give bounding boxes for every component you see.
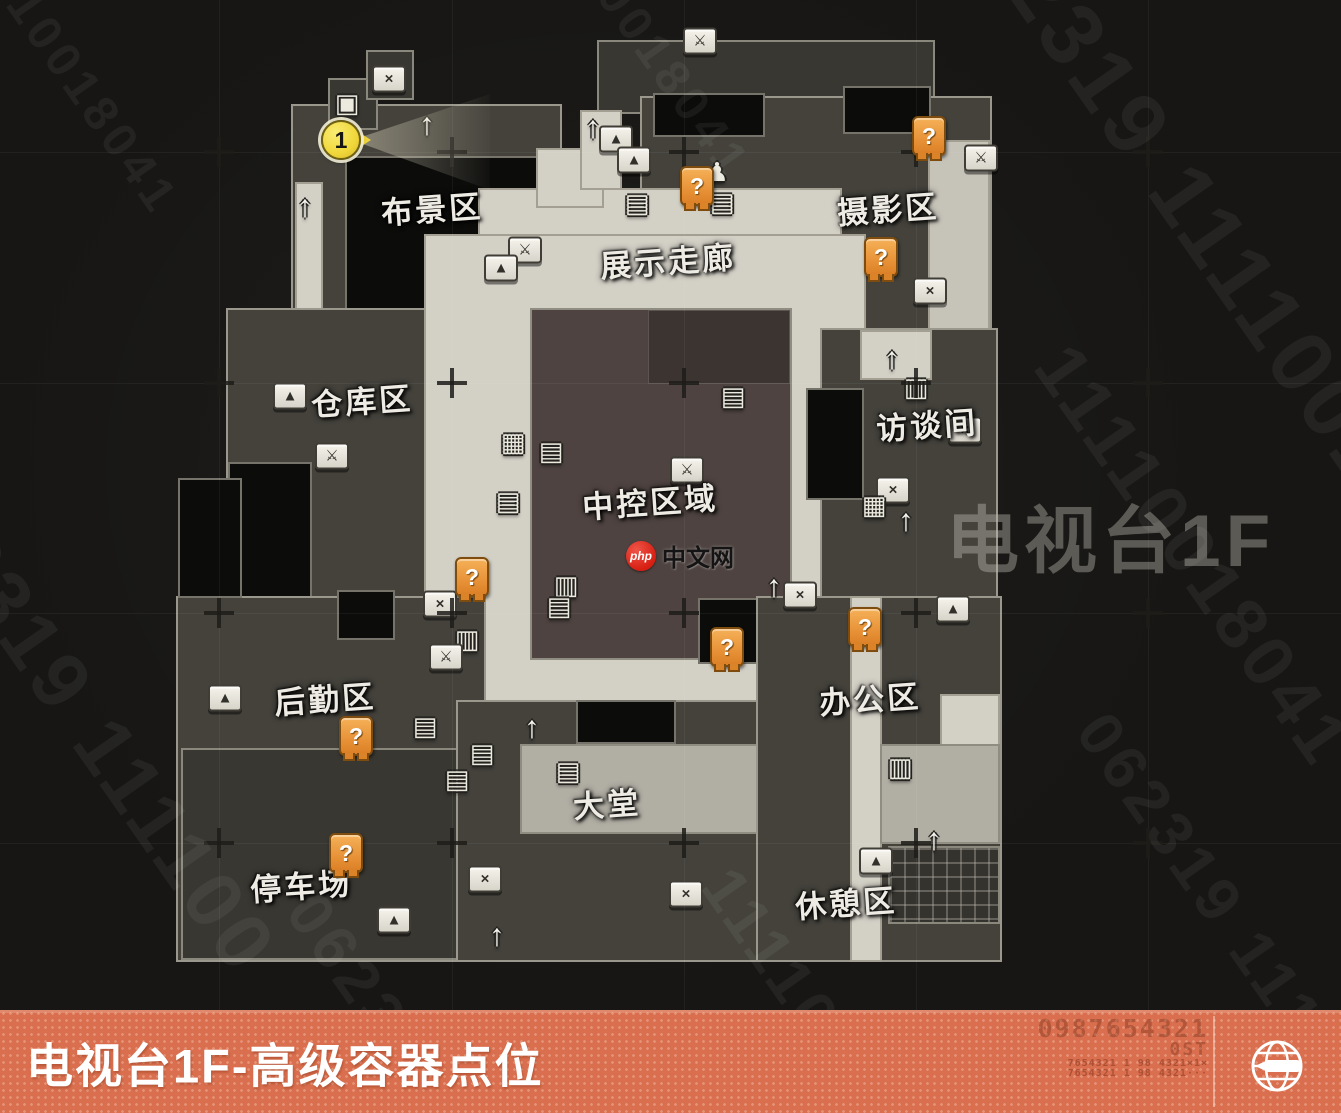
building-block bbox=[576, 700, 676, 744]
grid-cross-icon bbox=[901, 368, 931, 398]
crate-ammo-icon: ▲ bbox=[208, 685, 242, 712]
crate-x-icon: × bbox=[372, 66, 406, 93]
arrow-up-icon: ↑ bbox=[898, 505, 914, 536]
building-block bbox=[178, 478, 242, 598]
arrow-up-icon: ↑ bbox=[766, 571, 782, 602]
crate-ammo-icon: ▲ bbox=[273, 383, 307, 410]
room-label: 摄影区 bbox=[836, 181, 941, 233]
banner-code-line: 0987654321 bbox=[1008, 1016, 1208, 1041]
container-marker: ? bbox=[848, 607, 882, 647]
crate-ammo-icon: ▲ bbox=[377, 907, 411, 934]
room-label: 仓库区 bbox=[310, 373, 415, 425]
container-marker: ? bbox=[339, 716, 373, 756]
diagonal-watermark: 10018041 bbox=[0, 0, 190, 226]
room-label: 访谈间 bbox=[875, 397, 980, 449]
banner-code-line: 7654321 1 98 4321··· bbox=[1008, 1069, 1208, 1079]
luggage-icon: ▤ bbox=[413, 713, 438, 739]
crate-ammo-icon: ▲ bbox=[484, 255, 518, 282]
luggage-icon: ▤ bbox=[470, 740, 495, 766]
banner-code-line: 0ST bbox=[1008, 1041, 1208, 1059]
bottom-banner: 电视台1F-高级容器点位 0987654321 0ST 7654321 1 98… bbox=[0, 1010, 1341, 1113]
arrow-up-icon: ↑ bbox=[297, 191, 313, 222]
container-marker: ? bbox=[455, 557, 489, 597]
crate-rifle-icon: ⚔ bbox=[315, 443, 349, 470]
grid-cross-icon bbox=[901, 828, 931, 858]
spawn-marker-1: 1 bbox=[321, 120, 361, 160]
grid-cross-icon bbox=[669, 368, 699, 398]
container-marker: ? bbox=[329, 833, 363, 873]
room-label: 休憩区 bbox=[794, 875, 899, 927]
room-label: 大堂 bbox=[572, 777, 643, 827]
grid-cross-icon bbox=[204, 598, 234, 628]
luggage-icon: ▤ bbox=[556, 758, 581, 784]
crate-rifle-icon: ⚔ bbox=[683, 28, 717, 55]
container-marker: ? bbox=[710, 627, 744, 667]
grid-cross-icon bbox=[204, 137, 234, 167]
computer-icon: ▦ bbox=[862, 492, 887, 518]
room-label: 展示走廊 bbox=[599, 232, 738, 286]
grid-cross-icon bbox=[1133, 598, 1163, 628]
arrow-up-icon: ↑ bbox=[884, 343, 900, 374]
luggage-icon: ▤ bbox=[496, 488, 521, 514]
crate-ammo-icon: ▲ bbox=[617, 147, 651, 174]
site-watermark-text: 中文网 bbox=[662, 538, 734, 573]
grid-cross-icon bbox=[437, 598, 467, 628]
grid-cross-icon bbox=[901, 598, 931, 628]
screenshot-root: 布景区摄影区展示走廊仓库区访谈间中控区域后勤区办公区大堂停车场休憩区 ▣×⚔↑↑… bbox=[0, 0, 1341, 1113]
banner-code-texture: 0987654321 0ST 7654321 1 98 4321×1× 7654… bbox=[1008, 1016, 1208, 1079]
banner-title: 电视台1F-高级容器点位 bbox=[26, 1027, 544, 1096]
luggage-icon: ▤ bbox=[721, 383, 746, 409]
container-marker: ? bbox=[864, 237, 898, 277]
luggage-icon: ▤ bbox=[625, 190, 650, 216]
crate-ammo-icon: ▲ bbox=[859, 848, 893, 875]
luggage-icon: ▤ bbox=[539, 438, 564, 464]
luggage-icon: ▤ bbox=[445, 766, 470, 792]
grid-cross-icon bbox=[204, 368, 234, 398]
radiator-icon: ▥ bbox=[888, 754, 913, 780]
grid-cross-icon bbox=[437, 368, 467, 398]
tv-icon: ▣ bbox=[335, 90, 360, 116]
globe-bullet-icon bbox=[1249, 1038, 1305, 1094]
crate-ammo-icon: ▲ bbox=[936, 596, 970, 623]
crate-rifle-icon: ⚔ bbox=[429, 644, 463, 671]
arrow-up-icon: ↑ bbox=[489, 920, 505, 951]
room-label: 布景区 bbox=[380, 181, 485, 233]
banner-divider bbox=[1213, 1016, 1215, 1107]
crate-x-icon: × bbox=[913, 278, 947, 305]
room-label: 办公区 bbox=[818, 671, 923, 723]
crate-rifle-icon: ⚔ bbox=[964, 145, 998, 172]
grid-cross-icon bbox=[1133, 368, 1163, 398]
luggage-icon: ▤ bbox=[547, 593, 572, 619]
grid-cross-icon bbox=[669, 828, 699, 858]
crate-x-icon: × bbox=[783, 582, 817, 609]
grid-cross-icon bbox=[669, 598, 699, 628]
building-block bbox=[337, 590, 395, 640]
building-block bbox=[806, 388, 864, 500]
php-logo-icon: php bbox=[626, 541, 656, 571]
site-watermark: php 中文网 bbox=[626, 538, 734, 573]
grid-cross-icon bbox=[437, 828, 467, 858]
container-marker: ? bbox=[912, 116, 946, 156]
crate-x-icon: × bbox=[468, 866, 502, 893]
arrow-up-icon: ↑ bbox=[524, 712, 540, 743]
computer-icon: ▦ bbox=[501, 429, 526, 455]
room-label: 中控区域 bbox=[581, 473, 720, 527]
